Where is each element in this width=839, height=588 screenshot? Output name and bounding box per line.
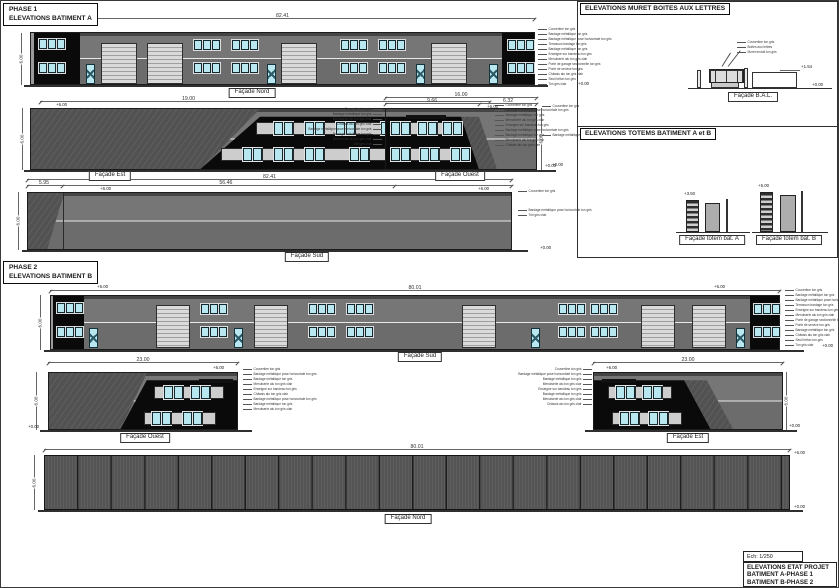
window bbox=[232, 63, 258, 73]
level-mark: +0.00 bbox=[822, 344, 833, 349]
p1-est-height-value: 6.00 bbox=[20, 134, 25, 145]
totems-header: ELEVATIONS TOTEMS BATIMENT A et B bbox=[580, 128, 716, 140]
leader-line bbox=[495, 135, 504, 136]
leader-line bbox=[542, 106, 551, 107]
ground-line bbox=[40, 430, 252, 432]
leader-line bbox=[243, 399, 252, 400]
garage-door bbox=[431, 43, 467, 84]
p2-sud-dim-value: 80.01 bbox=[409, 285, 422, 291]
ground-line bbox=[676, 232, 750, 233]
p2-nord-dim-value: 80.01 bbox=[411, 444, 424, 450]
phase2-title: PHASE 2 bbox=[9, 264, 92, 273]
title-line-2: BATIMENT A-PHASE 1 bbox=[747, 571, 833, 578]
callout: Couvertine ton gris bbox=[518, 189, 555, 194]
window bbox=[39, 63, 65, 73]
p2-sud-callouts: Couvertine ton grisBardage métallique to… bbox=[785, 288, 839, 348]
p2-est-height-value: 6.00 bbox=[784, 396, 789, 407]
leader-line bbox=[373, 124, 382, 125]
leader-line bbox=[785, 290, 794, 291]
callout: Ton gris clair bbox=[538, 82, 612, 87]
window bbox=[309, 327, 335, 337]
facade-p2-ouest bbox=[48, 372, 238, 430]
p2-est-label: Façade Est bbox=[667, 433, 709, 443]
leader-line bbox=[495, 115, 504, 116]
totem-b-plain bbox=[780, 195, 796, 232]
garage-door bbox=[462, 305, 496, 348]
level-mark: +1.54 bbox=[801, 65, 812, 70]
totem-a-plain bbox=[705, 203, 720, 232]
leader-line bbox=[785, 295, 794, 296]
p1-est-callouts: Couvertine ton grisBardage métallique po… bbox=[495, 103, 569, 148]
muret-post bbox=[744, 68, 748, 88]
signage-band bbox=[602, 379, 636, 383]
window bbox=[232, 40, 258, 50]
garage-door bbox=[254, 305, 288, 348]
window bbox=[341, 63, 367, 73]
window bbox=[347, 327, 373, 337]
leader-line bbox=[538, 69, 547, 70]
facade-p2-sud bbox=[50, 295, 780, 350]
leader-line bbox=[243, 379, 252, 380]
service-door bbox=[736, 328, 745, 348]
window bbox=[39, 39, 65, 49]
p2-sud-height-value: 6.00 bbox=[38, 317, 43, 328]
totem-a-label: Façade totem bât. A bbox=[679, 235, 745, 245]
window bbox=[341, 40, 367, 50]
window bbox=[379, 63, 405, 73]
p2-nord-height-dim: 6.00 bbox=[34, 455, 35, 510]
leader-line bbox=[583, 394, 592, 395]
p2-ouest-dim: 23.00 bbox=[48, 362, 238, 363]
muret-wall bbox=[752, 72, 797, 88]
phase2-subtitle: ELEVATIONS BATIMENT B bbox=[9, 273, 92, 282]
leader-line bbox=[737, 52, 746, 53]
leader-line bbox=[373, 134, 382, 135]
p1-nord-height-dim: 6.00 bbox=[21, 33, 22, 85]
leader-line bbox=[538, 44, 547, 45]
level-mark: +0.00 bbox=[28, 425, 39, 430]
service-door bbox=[489, 64, 498, 84]
scale-box: Ech: 1/250 bbox=[743, 551, 803, 562]
garage-door bbox=[156, 305, 190, 348]
leader-line bbox=[495, 140, 504, 141]
p2-sud-height-dim: 6.00 bbox=[40, 295, 41, 350]
leader-line bbox=[538, 49, 547, 50]
p1-nord-callouts: Couvertine ton grisBardage métallique to… bbox=[538, 27, 612, 87]
leader-line bbox=[373, 109, 382, 110]
muret-post bbox=[697, 70, 701, 88]
leader-line bbox=[243, 404, 252, 405]
window-strip-lower bbox=[144, 412, 216, 426]
p1-est-label: Façade Est bbox=[89, 171, 131, 181]
leader-line bbox=[785, 310, 794, 311]
ground-line bbox=[688, 88, 832, 89]
level-mark: +0.00 bbox=[812, 83, 823, 88]
signage-band bbox=[406, 115, 446, 119]
level-mark: +6.00 bbox=[56, 103, 67, 108]
p1-ouest-label: Façade Ouest bbox=[435, 171, 485, 181]
window-strip-lower bbox=[612, 412, 682, 426]
hatched-wedge bbox=[28, 193, 511, 249]
window bbox=[508, 40, 534, 50]
leader-line bbox=[737, 47, 746, 48]
ground-line bbox=[22, 250, 528, 252]
p1-sud-height-value: 6.00 bbox=[16, 216, 21, 227]
muret-panel bbox=[577, 1, 838, 128]
level-mark: +0.00 bbox=[540, 246, 551, 251]
garage-door bbox=[641, 305, 675, 348]
window bbox=[754, 304, 780, 314]
p2-ouest-dim-value: 23.00 bbox=[137, 357, 150, 363]
callout: Châssis alu ton gris clair bbox=[495, 143, 569, 148]
title-block: ELEVATIONS ETAT PROJET BATIMENT A-PHASE … bbox=[743, 562, 837, 587]
facade-p2-est bbox=[593, 372, 783, 430]
leader-line bbox=[583, 404, 592, 405]
leader-line bbox=[785, 320, 794, 321]
leader-line bbox=[538, 54, 547, 55]
window bbox=[194, 40, 220, 50]
leader-line bbox=[538, 64, 547, 65]
p1-sud-callout-mid: Bardage métallique pose horizontale ton … bbox=[518, 208, 592, 218]
p1-ouest-dim-value: 16.00 bbox=[455, 92, 468, 98]
scale-value: Ech: 1/250 bbox=[747, 554, 773, 560]
p1-est-dim: 19.00 bbox=[40, 101, 490, 102]
leader-line bbox=[583, 374, 592, 375]
facade-p2-nord bbox=[44, 455, 790, 510]
p1-ouest-callouts-left: Couvertine ton grisBardage métallique to… bbox=[310, 107, 382, 147]
window bbox=[201, 327, 227, 337]
p2-ouest-label: Façade Ouest bbox=[120, 433, 170, 443]
window bbox=[559, 304, 585, 314]
leader-line bbox=[538, 59, 547, 60]
phase2-header: PHASE 2 ELEVATIONS BATIMENT B bbox=[3, 261, 98, 284]
totem-a-pole bbox=[726, 199, 728, 232]
p2-est-height-dim: 6.00 bbox=[786, 372, 787, 430]
level-mark: +6.00 bbox=[794, 451, 805, 456]
p2-est-dim-value: 23.00 bbox=[682, 357, 695, 363]
p2-est-dim: 23.00 bbox=[593, 362, 783, 363]
p2-ouest-height-dim: 6.00 bbox=[36, 372, 37, 430]
leader-line bbox=[538, 79, 547, 80]
leader-line bbox=[542, 135, 551, 136]
leader-line bbox=[373, 129, 382, 130]
callout: Châssis alu ton gris clair bbox=[520, 402, 592, 407]
signage-band bbox=[199, 379, 233, 383]
leader-line bbox=[785, 325, 794, 326]
p1-est-height-dim: 6.00 bbox=[22, 108, 23, 170]
muret-level-line bbox=[780, 70, 800, 71]
p2-nord-dim: 80.01 bbox=[44, 449, 790, 450]
leader-line bbox=[495, 125, 504, 126]
leader-line bbox=[495, 110, 504, 111]
window bbox=[347, 304, 373, 314]
p2-nord-label: Façade Nord bbox=[385, 514, 432, 524]
ground-line bbox=[752, 232, 828, 233]
leader-line bbox=[583, 379, 592, 380]
p1-sud-height-dim: 6.00 bbox=[18, 192, 19, 250]
level-mark: +5.00 bbox=[758, 184, 769, 189]
p1-sud-label: Façade Sud bbox=[285, 252, 329, 262]
level-mark: +6.00 bbox=[478, 187, 489, 192]
p1-ouest-subdim-a: 9.66 bbox=[427, 98, 437, 104]
leader-line bbox=[243, 409, 252, 410]
leader-line bbox=[495, 145, 504, 146]
leader-line bbox=[583, 389, 592, 390]
leader-line bbox=[495, 130, 504, 131]
level-mark: +0.00 bbox=[794, 505, 805, 510]
window bbox=[201, 304, 227, 314]
p2-nord-height-value: 6.00 bbox=[32, 477, 37, 488]
leader-line bbox=[243, 384, 252, 385]
leader-line bbox=[538, 84, 547, 85]
p1-sud-subdim-b: 56.46 bbox=[219, 180, 232, 186]
window bbox=[591, 304, 617, 314]
phase1-title: PHASE 1 bbox=[9, 6, 92, 15]
level-mark: +3.50 bbox=[684, 192, 695, 197]
window bbox=[508, 63, 534, 73]
totem-b-label: Façade totem bât. B bbox=[756, 235, 822, 245]
leader-line bbox=[583, 369, 592, 370]
leader-line bbox=[583, 384, 592, 385]
leader-line bbox=[495, 120, 504, 121]
muret-callouts: Couvertine ton grisBoîtes aux lettresMur… bbox=[737, 40, 777, 55]
level-mark: +6.00 bbox=[714, 285, 725, 290]
leader-line bbox=[538, 39, 547, 40]
ground-line bbox=[24, 85, 548, 87]
title-line-3: BATIMENT B-PHASE 2 bbox=[747, 579, 833, 586]
p1-est-dim-value: 19.00 bbox=[182, 96, 195, 102]
service-door bbox=[416, 64, 425, 84]
leader-line bbox=[373, 114, 382, 115]
window bbox=[57, 327, 83, 337]
level-mark: +0.00 bbox=[789, 424, 800, 429]
callout: Couvertine ton gris bbox=[542, 104, 579, 109]
mailbox-grid bbox=[709, 69, 744, 83]
p1-ouest-callout-top: Couvertine ton gris bbox=[542, 104, 579, 109]
muret-header: ELEVATIONS MURET BOITES AUX LETTRES bbox=[580, 3, 730, 15]
level-mark: +6.00 bbox=[100, 187, 111, 192]
leader-line bbox=[243, 374, 252, 375]
window bbox=[57, 303, 83, 313]
window bbox=[559, 327, 585, 337]
level-mark: +6.00 bbox=[97, 285, 108, 290]
p1-sud-dim-value: 82.41 bbox=[263, 174, 276, 180]
window-strip-lower bbox=[221, 148, 399, 162]
window bbox=[309, 304, 335, 314]
totem-b-striped bbox=[760, 192, 773, 232]
window bbox=[379, 40, 405, 50]
totem-b-pole bbox=[801, 191, 803, 232]
service-door bbox=[86, 64, 95, 84]
p1-sud-callout-top: Couvertine ton gris bbox=[518, 189, 555, 194]
p2-est-callouts: Couvertine ton grisBardage métallique po… bbox=[520, 367, 592, 407]
leader-line bbox=[373, 139, 382, 140]
window-strip-upper bbox=[391, 122, 462, 136]
leader-line bbox=[785, 340, 794, 341]
garage-door bbox=[281, 43, 317, 84]
level-mark: +6.00 bbox=[487, 105, 498, 110]
p2-sud-label: Façade Sud bbox=[398, 352, 442, 362]
leader-line bbox=[518, 191, 527, 192]
title-line-1: ELEVATIONS ETAT PROJET bbox=[747, 564, 833, 571]
callout: Ton gris clair bbox=[310, 142, 382, 147]
joint-line bbox=[63, 193, 64, 249]
leader-line bbox=[518, 210, 527, 211]
leader-line bbox=[373, 144, 382, 145]
ground-line bbox=[585, 430, 797, 432]
p1-nord-label: Façade Nord bbox=[229, 88, 276, 98]
leader-line bbox=[538, 29, 547, 30]
window-strip-lower bbox=[391, 148, 470, 162]
leader-line bbox=[785, 315, 794, 316]
level-mark: +0.00 bbox=[578, 82, 589, 87]
window-strip-upper bbox=[608, 386, 672, 400]
leader-line bbox=[737, 42, 746, 43]
leader-line bbox=[243, 394, 252, 395]
p1-ouest-dim: 16.00 bbox=[385, 97, 537, 98]
phase1-subtitle: ELEVATIONS BATIMENT A bbox=[9, 15, 92, 24]
leader-line bbox=[373, 119, 382, 120]
garage-door bbox=[692, 305, 726, 348]
level-mark: +6.00 bbox=[606, 366, 617, 371]
window-strip-upper bbox=[154, 386, 224, 400]
leader-line bbox=[785, 335, 794, 336]
leader-line bbox=[243, 389, 252, 390]
drawing-sheet: PHASE 1 ELEVATIONS BATIMENT A PHASE 2 EL… bbox=[0, 0, 839, 588]
leader-line bbox=[785, 300, 794, 301]
leader-line bbox=[785, 305, 794, 306]
service-door bbox=[531, 328, 540, 348]
p2-ouest-callouts: Couvertine ton grisBardage métallique po… bbox=[243, 367, 317, 412]
p1-nord-dim: 82.41 bbox=[30, 18, 535, 19]
facade-p1-nord bbox=[30, 32, 535, 85]
p2-ouest-height-value: 6.00 bbox=[34, 396, 39, 407]
window bbox=[754, 327, 780, 337]
garage-door bbox=[147, 43, 183, 84]
callout: Ton gris clair bbox=[518, 213, 592, 218]
level-mark: +6.00 bbox=[213, 366, 224, 371]
window bbox=[194, 63, 220, 73]
callout: Muret enduit ton gris bbox=[737, 50, 777, 55]
callout: Menuiserie alu ton gris clair bbox=[243, 407, 317, 412]
service-door bbox=[89, 328, 98, 348]
leader-line bbox=[243, 369, 252, 370]
leader-line bbox=[538, 74, 547, 75]
service-door bbox=[267, 64, 276, 84]
leader-line bbox=[538, 34, 547, 35]
bal-label: Façade B.A.L. bbox=[728, 92, 778, 102]
facade-p1-sud bbox=[27, 192, 512, 250]
leader-line bbox=[583, 399, 592, 400]
p2-sud-dim: 80.01 bbox=[50, 290, 780, 291]
garage-door bbox=[101, 43, 137, 84]
phase1-header: PHASE 1 ELEVATIONS BATIMENT A bbox=[3, 3, 98, 26]
leader-line bbox=[518, 215, 527, 216]
leader-line bbox=[785, 345, 794, 346]
ground-line bbox=[38, 510, 803, 512]
p1-nord-height-value: 6.00 bbox=[19, 54, 24, 65]
service-door bbox=[234, 328, 243, 348]
window bbox=[591, 327, 617, 337]
leader-line bbox=[785, 330, 794, 331]
level-mark: +0.00 bbox=[545, 164, 556, 169]
totem-a-striped bbox=[686, 200, 699, 232]
p1-sud-subdim-a: 5.95 bbox=[39, 180, 49, 186]
p1-nord-dim-value: 82.41 bbox=[276, 13, 289, 19]
